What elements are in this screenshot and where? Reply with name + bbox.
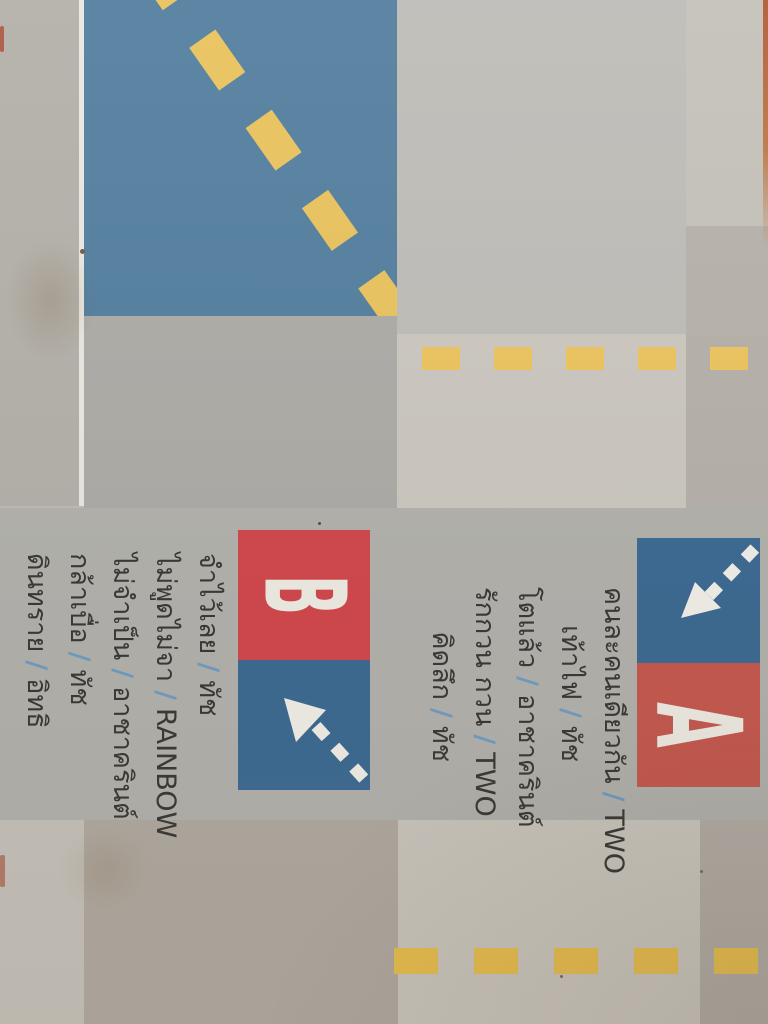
- map-blue-square: [84, 0, 397, 316]
- track-line: คิดลึก/ทัช: [420, 587, 463, 762]
- dash-segment: [554, 948, 598, 974]
- track-line: ดินทราย/อิทธิ: [15, 553, 58, 803]
- yellow-dashed-line-bottom: [394, 948, 768, 974]
- track-line: เท้าไฟ/ทัช: [549, 587, 592, 762]
- track-title: กล้าเบื่อ: [64, 553, 95, 644]
- separator-slash: /: [150, 682, 181, 708]
- separator-slash: /: [512, 668, 543, 694]
- track-title: จำไว้เลย: [193, 553, 224, 654]
- road-dashed-diagonal-icon: [84, 0, 397, 316]
- side-b-red-square: B: [238, 530, 370, 660]
- side-b-blue-square: [238, 660, 370, 790]
- dash-segment: [634, 948, 678, 974]
- dash-segment: [494, 347, 532, 370]
- separator-slash: /: [21, 652, 52, 678]
- paper-block-bottom-4: [700, 820, 768, 1024]
- track-artist: ทัช: [64, 670, 95, 706]
- paper-stain: [60, 830, 150, 910]
- yellow-dashed-line-middle: [422, 347, 768, 370]
- photographed-cassette-insert-page: B A จำไว้เลย/ทัช ไม่พูดไม่จา/RAINBOW ไม่…: [0, 0, 768, 1024]
- track-artist: ทัช: [555, 726, 586, 762]
- track-artist: อิทธิ: [21, 678, 52, 729]
- track-title: คิดลึก: [426, 632, 457, 701]
- arrow-down-left-icon: [637, 538, 760, 663]
- separator-slash: /: [107, 660, 138, 686]
- track-artist: ทัช: [193, 680, 224, 716]
- side-b-track-list: จำไว้เลย/ทัช ไม่พูดไม่จา/RAINBOW ไม่จำเป…: [15, 553, 230, 803]
- track-title: ดินทราย: [21, 553, 52, 652]
- dash-segment: [710, 347, 748, 370]
- dash-segment: [638, 347, 676, 370]
- track-line: จำไว้เลย/ทัช: [187, 553, 230, 803]
- track-artist: TWO: [469, 752, 500, 816]
- track-line: รักกวน กวน/TWO: [463, 587, 506, 762]
- paper-block-top-right-dark: [686, 226, 768, 335]
- paper-stain: [8, 240, 93, 360]
- dash-segment: [566, 347, 604, 370]
- paper-speck: [560, 975, 563, 978]
- track-line: คนละคนเดียวกัน/TWO: [592, 587, 635, 762]
- separator-slash: /: [426, 700, 457, 726]
- side-a-blue-square: [637, 538, 760, 663]
- track-title: รักกวน กวน: [469, 587, 500, 726]
- side-a-red-square: A: [637, 663, 760, 787]
- track-artist: TWO: [598, 810, 629, 874]
- track-artist: ทัช: [426, 726, 457, 762]
- track-artist: อาชาครินต์: [512, 694, 543, 827]
- track-line: กล้าเบื่อ/ทัช: [58, 553, 101, 803]
- track-line: โตแล้ว/อาชาครินต์: [506, 587, 549, 762]
- separator-slash: /: [555, 700, 586, 726]
- edge-red-mark: [0, 855, 5, 887]
- separator-slash: /: [469, 726, 500, 752]
- separator-slash: /: [64, 644, 95, 670]
- paper-block-bottom-3: [398, 820, 700, 1024]
- paper-block-under-blue: [84, 316, 397, 508]
- separator-slash: /: [193, 654, 224, 680]
- edge-red-mark: [0, 26, 4, 52]
- track-title: ไม่พูดไม่จา: [150, 553, 181, 682]
- separator-slash: /: [598, 784, 629, 810]
- track-title: เท้าไฟ: [555, 625, 586, 700]
- track-artist: RAINBOW: [150, 708, 181, 838]
- dash-segment: [714, 948, 758, 974]
- track-title: คนละคนเดียวกัน: [598, 587, 629, 784]
- track-artist: อาชาครินต์: [107, 686, 138, 819]
- paper-speck: [80, 249, 85, 254]
- track-line: ไม่พูดไม่จา/RAINBOW: [144, 553, 187, 803]
- paper-speck: [318, 522, 321, 525]
- dash-segment: [474, 948, 518, 974]
- side-b-letter: B: [248, 575, 360, 615]
- dash-segment: [394, 948, 438, 974]
- page-edge-rust-mark: [763, 0, 768, 248]
- track-line: ไม่จำเป็น/อาชาครินต์: [101, 553, 144, 803]
- track-title: ไม่จำเป็น: [107, 553, 138, 660]
- dash-segment: [422, 347, 460, 370]
- track-title: โตแล้ว: [512, 587, 543, 668]
- side-a-letter: A: [639, 702, 757, 748]
- side-a-track-list: คนละคนเดียวกัน/TWO เท้าไฟ/ทัช โตแล้ว/อาช…: [420, 587, 635, 762]
- arrow-up-left-icon: [238, 660, 370, 790]
- paper-block-top-right-light: [686, 0, 768, 226]
- paper-speck: [700, 870, 703, 873]
- paper-block-top-middle: [397, 0, 686, 334]
